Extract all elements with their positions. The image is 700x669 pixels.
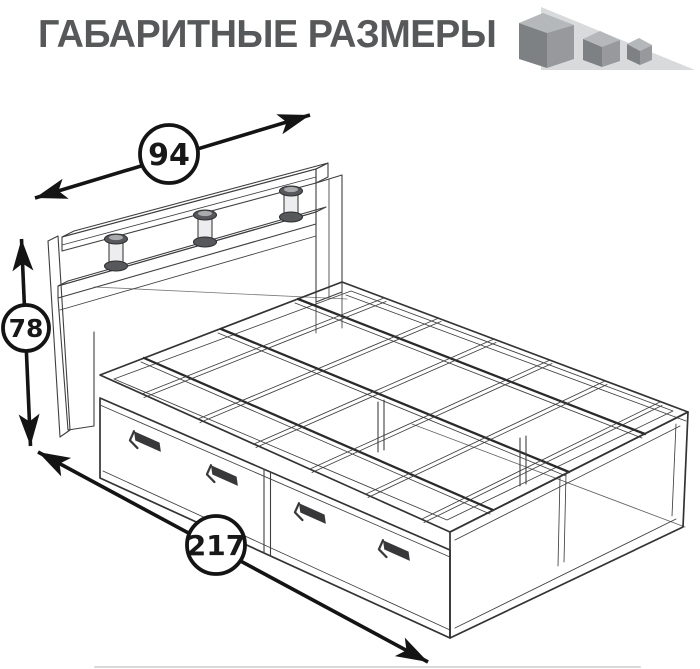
bed-wireframe-diagram: 94 78 217 — [0, 0, 700, 669]
drawer-handle — [377, 540, 413, 566]
drawer-handle — [205, 465, 241, 491]
drawer-handle — [128, 431, 164, 457]
width-value: 94 — [148, 138, 190, 173]
bed-drawing — [48, 163, 688, 667]
dimension-width-callout: 94 — [32, 105, 313, 208]
dimension-diagram-page: ГАБАРИТНЫЕ РАЗМЕРЫ — [0, 0, 700, 669]
platform-deck — [100, 282, 688, 532]
height-value: 78 — [9, 314, 44, 343]
dimension-height-callout: 78 — [3, 239, 49, 447]
drawer-handle — [293, 503, 329, 529]
length-value: 217 — [187, 529, 245, 562]
foot-end — [450, 412, 688, 638]
